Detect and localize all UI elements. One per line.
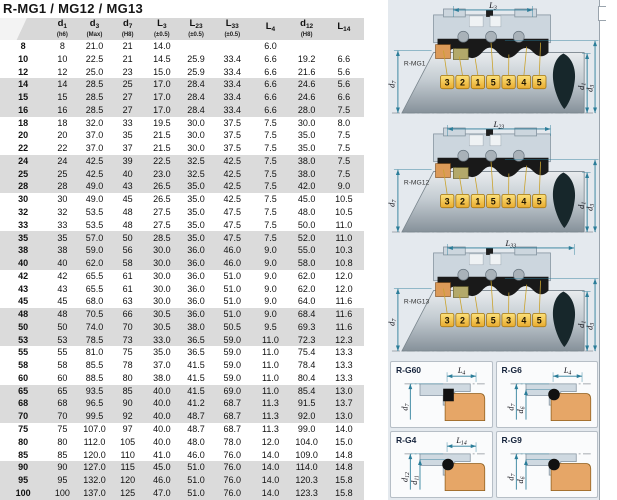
table-cell: 11.3 [251, 423, 289, 436]
table-cell: 51.0 [213, 270, 251, 283]
svg-text:L23: L23 [493, 120, 505, 130]
table-cell: 32.0 [78, 117, 110, 130]
table-cell: 96.5 [78, 397, 110, 410]
table-cell: 14.0 [324, 423, 364, 436]
part-number-tag: 1 [475, 77, 480, 87]
face-ring [453, 49, 468, 60]
table-cell: 12.0 [251, 436, 289, 449]
table-cell: 43 [46, 283, 78, 296]
row-label: 8 [0, 40, 46, 53]
table-cell: 41.5 [179, 359, 213, 372]
column-header-L4: L4 [251, 18, 289, 40]
table-cell: 55 [46, 346, 78, 359]
table-cell: 11.6 [324, 321, 364, 334]
table-cell: 28.5 [145, 231, 179, 244]
svg-text:d11: d11 [410, 475, 420, 485]
table-cell: 12.0 [324, 270, 364, 283]
table-cell: 35 [46, 231, 78, 244]
table-row: 404062.05830.036.046.09.058.010.8 [0, 257, 364, 270]
table-cell: 123.3 [290, 487, 324, 500]
table-cell: 38.0 [145, 372, 179, 385]
table-cell: 14.0 [251, 461, 289, 474]
table-cell: 6.0 [251, 40, 289, 53]
dim-top: L4 [447, 366, 476, 382]
table-row: 101022.52114.525.933.46.619.26.6 [0, 53, 364, 66]
table-cell: 53.5 [78, 219, 110, 232]
table-cell: 6.6 [251, 66, 289, 79]
table-cell: 15 [46, 91, 78, 104]
table-cell: 81.0 [78, 346, 110, 359]
part-number-tag: 1 [475, 196, 480, 206]
table-cell: 19.2 [290, 53, 324, 66]
table-cell: 14.0 [251, 449, 289, 462]
svg-text:d7: d7 [388, 318, 398, 326]
table-cell: 11.0 [251, 334, 289, 347]
table-row: 323253.54827.535.047.57.548.010.5 [0, 206, 364, 219]
table-cell: 36.0 [179, 270, 213, 283]
part-number-tag: 3 [445, 196, 450, 206]
table-cell: 30.5 [145, 308, 179, 321]
table-cell: 76.0 [213, 474, 251, 487]
table-cell: 21.5 [145, 142, 179, 155]
table-cell: 27.5 [145, 219, 179, 232]
table-row: 555581.07535.036.559.011.075.413.3 [0, 346, 364, 359]
row-label: 42 [0, 270, 46, 283]
table-cell: 36.0 [179, 283, 213, 296]
table-cell: 132.0 [78, 474, 110, 487]
table-cell: 68 [46, 397, 78, 410]
table-cell: 70 [111, 321, 145, 334]
table-row: 282849.04326.535.042.57.542.09.0 [0, 180, 364, 193]
svg-text:L4: L4 [562, 366, 571, 376]
table-cell: 72.3 [290, 334, 324, 347]
part-number-tag: 5 [537, 315, 542, 325]
table-cell: 68.0 [78, 295, 110, 308]
table-cell: 50.5 [213, 321, 251, 334]
table-cell: 53 [46, 334, 78, 347]
face-ring [453, 287, 468, 298]
table-cell: 36.5 [179, 346, 213, 359]
table-cell: 14.8 [324, 449, 364, 462]
svg-text:d6: d6 [516, 476, 526, 483]
part-number-tag: 2 [460, 315, 465, 325]
table-cell: 6.6 [324, 53, 364, 66]
table-cell: 8 [46, 40, 78, 53]
table-cell: 35.0 [290, 142, 324, 155]
seat-ring [436, 283, 451, 297]
table-cell: 48.7 [179, 410, 213, 423]
table-cell: 70.5 [78, 308, 110, 321]
table-cell: 65.5 [78, 270, 110, 283]
table-cell: 14.0 [251, 474, 289, 487]
table-cell: 33 [111, 117, 145, 130]
row-label: 30 [0, 193, 46, 206]
table-cell: 40.0 [145, 410, 179, 423]
table-cell: 115 [111, 461, 145, 474]
table-cell: 9.0 [324, 180, 364, 193]
table-cell: 42.5 [213, 155, 251, 168]
table-cell: 40.0 [145, 423, 179, 436]
table-cell: 14.0 [251, 487, 289, 500]
table-cell: 41.0 [145, 449, 179, 462]
table-row: 424265.56130.036.051.09.062.012.0 [0, 270, 364, 283]
table-cell: 85 [46, 449, 78, 462]
table-cell: 62.0 [290, 283, 324, 296]
seal-diagram-r-mg13: R-MG13 3 2 1 5 3 4 5 [388, 239, 600, 358]
table-cell: 46.0 [179, 449, 213, 462]
table-cell: 45.0 [290, 193, 324, 206]
table-cell: 33.4 [213, 66, 251, 79]
table-cell: 41.5 [179, 385, 213, 398]
row-label: 95 [0, 474, 46, 487]
table-cell: 30.0 [145, 270, 179, 283]
table-cell: 104.0 [290, 436, 324, 449]
table-cell: 78.4 [290, 359, 324, 372]
table-cell: 36.0 [179, 257, 213, 270]
table-cell: 12 [46, 66, 78, 79]
dim-top: L4 [553, 366, 582, 382]
table-cell: 24 [46, 155, 78, 168]
table-cell: 35.0 [179, 193, 213, 206]
table-cell: 65.5 [78, 283, 110, 296]
table-row: 242442.53922.532.542.57.538.07.5 [0, 155, 364, 168]
part-number-tag: 2 [460, 196, 465, 206]
table-cell: 99.0 [290, 423, 324, 436]
table-cell: 27 [111, 91, 145, 104]
table-cell: 35.0 [179, 219, 213, 232]
part-number-tag: 4 [521, 196, 526, 206]
table-cell: 35 [111, 129, 145, 142]
table-cell: 91.5 [290, 397, 324, 410]
column-header-d7: d7(H8) [111, 18, 145, 40]
svg-text:d7: d7 [400, 402, 410, 410]
table-cell: 10 [46, 53, 78, 66]
table-cell: 21.5 [145, 129, 179, 142]
table-row: 484870.56630.536.051.09.068.411.6 [0, 308, 364, 321]
table-cell: 37.0 [145, 359, 179, 372]
diagram-label: R-MG12 [404, 179, 430, 186]
table-cell: 51.0 [179, 487, 213, 500]
table-cell: 30.0 [290, 117, 324, 130]
dimension-table-zone: R-MG1 / MG12 / MG13 d1(h6) d3(Max) d7(H8… [0, 0, 388, 500]
table-cell: 42.5 [78, 168, 110, 181]
table-cell: 51.0 [213, 283, 251, 296]
table-cell: 20 [46, 129, 78, 142]
table-cell: 7.5 [251, 193, 289, 206]
row-label: 53 [0, 334, 46, 347]
table-cell: 63 [111, 295, 145, 308]
table-cell: 76.0 [213, 461, 251, 474]
part-number-tag: 5 [537, 77, 542, 87]
table-cell: 6.6 [251, 78, 289, 91]
table-cell: 28.5 [78, 104, 110, 117]
row-label: 16 [0, 104, 46, 117]
table-cell: 47.5 [213, 231, 251, 244]
table-cell: 8.0 [324, 117, 364, 130]
table-cell: 11.0 [251, 385, 289, 398]
table-row: 252542.54023.032.542.57.538.07.5 [0, 168, 364, 181]
table-cell: 23.0 [145, 168, 179, 181]
table-cell: 109.0 [290, 449, 324, 462]
table-cell: 36.5 [179, 334, 213, 347]
table-cell: 25 [46, 168, 78, 181]
table-cell: 33.4 [213, 104, 251, 117]
table-row: 707099.59240.048.768.711.392.013.0 [0, 410, 364, 423]
column-header-d3: d3(Max) [78, 18, 110, 40]
table-cell: 80.4 [290, 372, 324, 385]
row-label: 22 [0, 142, 46, 155]
table-cell: 32.5 [179, 168, 213, 181]
oring [548, 459, 560, 471]
table-cell: 22 [46, 142, 78, 155]
diagram-label: R-MG13 [404, 298, 430, 305]
row-label: 60 [0, 372, 46, 385]
table-cell: 42 [46, 270, 78, 283]
part-number-tag: 3 [506, 77, 511, 87]
table-cell: 9.0 [251, 295, 289, 308]
table-cell: 49.0 [78, 180, 110, 193]
table-cell: 36.0 [179, 244, 213, 257]
seal-diagram-r-mg12: R-MG12 3 2 1 5 3 4 5 [388, 120, 600, 239]
table-cell: 68.7 [213, 410, 251, 423]
diagram-label: R-MG1 [404, 60, 426, 67]
table-cell: 21 [111, 53, 145, 66]
table-row: 161628.52717.028.433.46.628.07.5 [0, 104, 364, 117]
row-label: 12 [0, 66, 46, 79]
table-cell: 42.5 [213, 180, 251, 193]
table-cell: 45 [111, 193, 145, 206]
table-row: 8585120.011041.046.076.014.0109.014.8 [0, 449, 364, 462]
table-row: 8080112.010540.048.078.012.0104.015.0 [0, 436, 364, 449]
table-cell: 38 [46, 244, 78, 257]
table-cell: 21 [111, 40, 145, 53]
table-cell: 7.5 [251, 117, 289, 130]
table-cell: 33.4 [213, 53, 251, 66]
table-cell: 50 [46, 321, 78, 334]
seat-panel-r-g6: R-G6 L4 d7 d6 [496, 361, 599, 428]
table-cell: 51.0 [213, 295, 251, 308]
table-cell: 10.5 [324, 193, 364, 206]
svg-text:d6: d6 [516, 406, 526, 413]
table-cell: 76.0 [213, 487, 251, 500]
table-cell: 85.4 [290, 385, 324, 398]
table-cell: 36.0 [179, 295, 213, 308]
row-label: 85 [0, 449, 46, 462]
table-cell: 78 [111, 359, 145, 372]
spring [458, 31, 469, 42]
table-cell: 51.0 [213, 308, 251, 321]
table-cell: 61 [111, 270, 145, 283]
table-cell: 28.0 [290, 104, 324, 117]
row-label: 50 [0, 321, 46, 334]
table-row: 121225.02315.025.933.46.621.65.6 [0, 66, 364, 79]
column-header-d1: d1(h6) [46, 18, 78, 40]
table-cell: 62.0 [290, 270, 324, 283]
seat-diagrams: R-G60 L4 d7 R-G6 [390, 361, 598, 498]
table-cell: 9.5 [251, 321, 289, 334]
table-row: 202037.03521.530.037.57.535.07.5 [0, 129, 364, 142]
elastomer [443, 389, 454, 402]
table-cell: 14 [46, 78, 78, 91]
table-cell: 6.6 [251, 104, 289, 117]
row-label: 20 [0, 129, 46, 142]
table-cell: 38.0 [290, 155, 324, 168]
table-cell: 25 [111, 78, 145, 91]
row-label: 48 [0, 308, 46, 321]
table-cell: 6.6 [324, 91, 364, 104]
row-label: 40 [0, 257, 46, 270]
part-number-tag: 3 [506, 315, 511, 325]
table-cell: 33.4 [213, 78, 251, 91]
table-cell: 60 [46, 372, 78, 385]
table-row: 606088.58038.041.559.011.080.413.3 [0, 372, 364, 385]
table-cell: 7.5 [251, 142, 289, 155]
table-cell: 37.5 [213, 129, 251, 142]
table-cell: 48 [111, 219, 145, 232]
table-cell: 92 [111, 410, 145, 423]
table-row: 9595132.012046.051.076.014.0120.315.8 [0, 474, 364, 487]
table-cell: 61 [111, 283, 145, 296]
table-cell: 45 [46, 295, 78, 308]
table-cell: 26.5 [145, 180, 179, 193]
table-cell: 11.6 [324, 308, 364, 321]
dimensions-table: d1(h6) d3(Max) d7(H8) L3(±0.5) L23(±0.5)… [0, 18, 364, 500]
table-cell: 40.0 [145, 397, 179, 410]
table-cell: 46.0 [145, 474, 179, 487]
table-cell: 13.7 [324, 397, 364, 410]
table-cell: 76.0 [213, 449, 251, 462]
column-header-L3: L3(±0.5) [145, 18, 179, 40]
table-cell: 11.6 [324, 295, 364, 308]
table-cell: 11.0 [251, 359, 289, 372]
table-header-row: d1(h6) d3(Max) d7(H8) L3(±0.5) L23(±0.5)… [0, 18, 364, 40]
table-cell: 30.0 [145, 257, 179, 270]
page-title: R-MG1 / MG12 / MG13 [0, 0, 388, 18]
table-cell: 73 [111, 334, 145, 347]
table-cell: 48 [111, 206, 145, 219]
table-cell: 59.0 [213, 346, 251, 359]
table-cell: 25.9 [179, 53, 213, 66]
svg-text:L14: L14 [455, 436, 466, 446]
row-label: 25 [0, 168, 46, 181]
column-header-blank [0, 18, 46, 40]
table-cell: 78.5 [78, 334, 110, 347]
table-cell: 42.5 [213, 168, 251, 181]
table-cell: 5.6 [324, 78, 364, 91]
table-cell [324, 40, 364, 53]
table-cell: 137.0 [78, 487, 110, 500]
row-label: 33 [0, 219, 46, 232]
table-cell: 80 [46, 436, 78, 449]
part-number-tag: 3 [506, 196, 511, 206]
part-number-tags: 3 2 1 5 3 4 5 [441, 75, 547, 88]
table-cell: 27 [111, 104, 145, 117]
table-cell: 33.0 [145, 334, 179, 347]
table-cell: 59.0 [213, 334, 251, 347]
table-cell: 59.0 [213, 372, 251, 385]
table-cell: 12.3 [324, 334, 364, 347]
table-cell: 58 [46, 359, 78, 372]
table-cell: 25.0 [78, 66, 110, 79]
table-cell: 92.0 [290, 410, 324, 423]
table-cell: 69.0 [213, 385, 251, 398]
table-cell: 15.0 [145, 66, 179, 79]
face-ring [453, 168, 468, 179]
seat-panel-r-g60: R-G60 L4 d7 [390, 361, 493, 428]
table-cell: 11.0 [324, 231, 364, 244]
table-cell: 93.5 [78, 385, 110, 398]
table-cell [213, 40, 251, 53]
table-cell: 40 [111, 168, 145, 181]
table-cell: 120.0 [78, 449, 110, 462]
part-number-tag: 2 [460, 77, 465, 87]
table-cell: 37.0 [78, 129, 110, 142]
table-row: 181832.03319.530.037.57.530.08.0 [0, 117, 364, 130]
table-cell: 120 [111, 474, 145, 487]
table-cell: 26.5 [145, 193, 179, 206]
table-cell: 47.5 [213, 219, 251, 232]
table-cell: 17.0 [145, 91, 179, 104]
table-cell: 40 [46, 257, 78, 270]
table-row: 141428.52517.028.433.46.624.65.6 [0, 78, 364, 91]
table-cell: 51.0 [179, 474, 213, 487]
table-cell: 14.8 [324, 461, 364, 474]
table-cell: 7.5 [251, 231, 289, 244]
table-cell: 10.3 [324, 244, 364, 257]
table-row: 100100137.012547.051.076.014.0123.315.8 [0, 487, 364, 500]
table-cell: 35.0 [179, 206, 213, 219]
table-cell: 28.4 [179, 91, 213, 104]
spring [458, 150, 469, 161]
part-number-tag: 4 [521, 315, 526, 325]
table-cell: 75 [111, 346, 145, 359]
table-cell: 7.5 [251, 206, 289, 219]
oring [548, 389, 560, 401]
row-label: 18 [0, 117, 46, 130]
table-row: 222237.03721.530.037.57.535.07.5 [0, 142, 364, 155]
table-cell: 7.5 [251, 168, 289, 181]
table-row: 535378.57333.036.559.011.072.312.3 [0, 334, 364, 347]
table-cell: 90 [111, 397, 145, 410]
table-cell: 37.5 [213, 142, 251, 155]
table-cell: 16 [46, 104, 78, 117]
part-number-tag: 5 [491, 196, 496, 206]
row-label: 80 [0, 436, 46, 449]
table-cell: 38.0 [179, 321, 213, 334]
main-diagrams: R-MG1 3 2 1 5 3 4 5 [388, 1, 600, 358]
row-label: 10 [0, 53, 46, 66]
table-cell: 46.0 [213, 257, 251, 270]
table-cell: 66 [111, 308, 145, 321]
table-cell: 55.0 [290, 244, 324, 257]
table-cell: 90 [46, 461, 78, 474]
table-cell: 9.0 [251, 308, 289, 321]
table-cell: 11.3 [251, 410, 289, 423]
table-cell: 56 [111, 244, 145, 257]
part-number-tag: 4 [521, 77, 526, 87]
table-cell: 15.8 [324, 487, 364, 500]
table-cell: 19.5 [145, 117, 179, 130]
row-label: 70 [0, 410, 46, 423]
table-cell: 107.0 [78, 423, 110, 436]
table-cell: 74.0 [78, 321, 110, 334]
table-cell: 30 [46, 193, 78, 206]
table-cell: 30.0 [145, 244, 179, 257]
table-cell: 23 [111, 66, 145, 79]
part-number-tags: 3 2 1 5 3 4 5 [441, 313, 547, 326]
row-label: 55 [0, 346, 46, 359]
table-cell: 11.0 [324, 219, 364, 232]
